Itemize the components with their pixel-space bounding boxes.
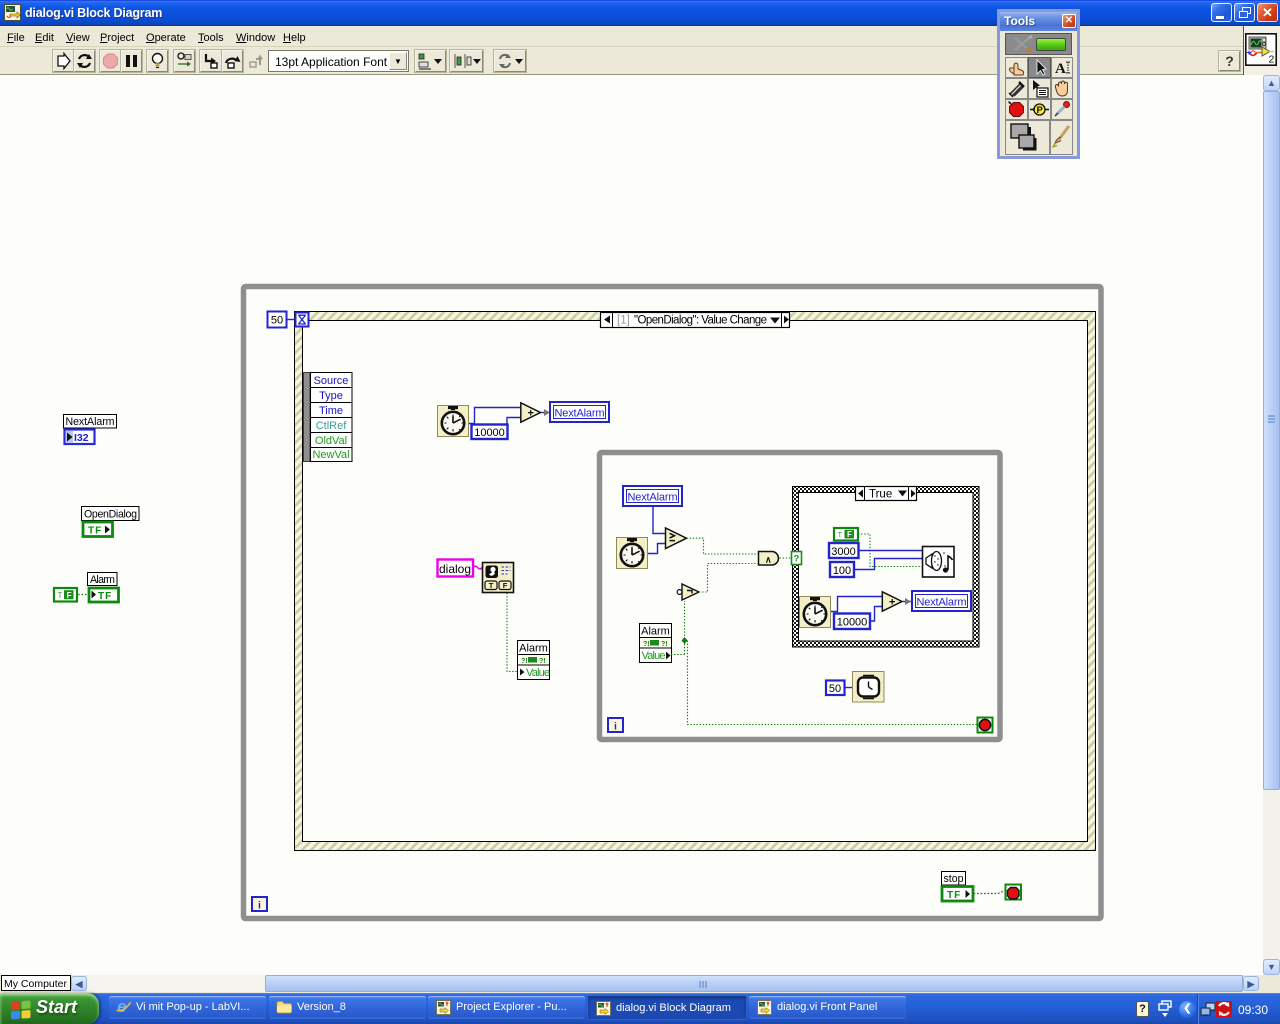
svg-text:Alarm: Alarm [641, 626, 670, 638]
svg-text:3000: 3000 [831, 546, 855, 558]
svg-text:"OpenDialog": Value Change: "OpenDialog": Value Change [634, 315, 767, 327]
svg-text:i: i [258, 900, 261, 912]
svg-text:NextAlarm: NextAlarm [66, 416, 115, 428]
svg-text:TF: TF [88, 526, 102, 537]
svg-text:T: T [838, 530, 843, 539]
svg-text:dialog: dialog [439, 562, 471, 576]
svg-text:Alarm: Alarm [519, 643, 548, 655]
svg-text:I32: I32 [74, 432, 89, 444]
svg-text:e: e [117, 998, 126, 1015]
svg-text:OldVal: OldVal [315, 435, 347, 447]
svg-text:i: i [614, 721, 617, 733]
svg-text:CtlRef: CtlRef [316, 420, 348, 432]
svg-text:True: True [869, 489, 892, 501]
svg-text:T: T [58, 591, 63, 600]
svg-text:[1]: [1] [617, 315, 630, 327]
svg-text:?!: ?! [661, 641, 668, 648]
svg-text:F: F [847, 530, 852, 539]
svg-text:?!: ?! [521, 658, 528, 665]
svg-text:TF: TF [947, 890, 961, 901]
svg-text:OpenDialog: OpenDialog [84, 509, 137, 521]
svg-text:?!: ?! [643, 641, 650, 648]
svg-text:2: 2 [1269, 54, 1275, 66]
svg-text:TF: TF [98, 591, 112, 602]
svg-text:50: 50 [829, 683, 841, 695]
svg-text:NewVal: NewVal [312, 449, 349, 461]
svg-text:50: 50 [271, 315, 283, 327]
svg-text:10000: 10000 [474, 427, 505, 439]
svg-text:F: F [503, 581, 508, 590]
svg-text:T: T [489, 581, 494, 590]
svg-text:Time: Time [319, 405, 343, 417]
svg-text:P: P [1037, 105, 1044, 116]
svg-text:Value: Value [526, 667, 550, 679]
svg-text:?!: ?! [539, 658, 546, 665]
svg-text:Source: Source [314, 375, 349, 387]
svg-text:Type: Type [319, 390, 343, 402]
svg-text:?: ? [794, 554, 800, 565]
svg-text:∧: ∧ [765, 555, 772, 565]
svg-text:100: 100 [833, 565, 851, 577]
svg-text:Value: Value [642, 650, 666, 662]
svg-text:Alarm: Alarm [90, 574, 115, 586]
svg-text:stop: stop [944, 873, 964, 885]
svg-text:10000: 10000 [837, 617, 868, 629]
svg-text:A: A [1055, 61, 1066, 77]
svg-text:F: F [67, 590, 72, 600]
